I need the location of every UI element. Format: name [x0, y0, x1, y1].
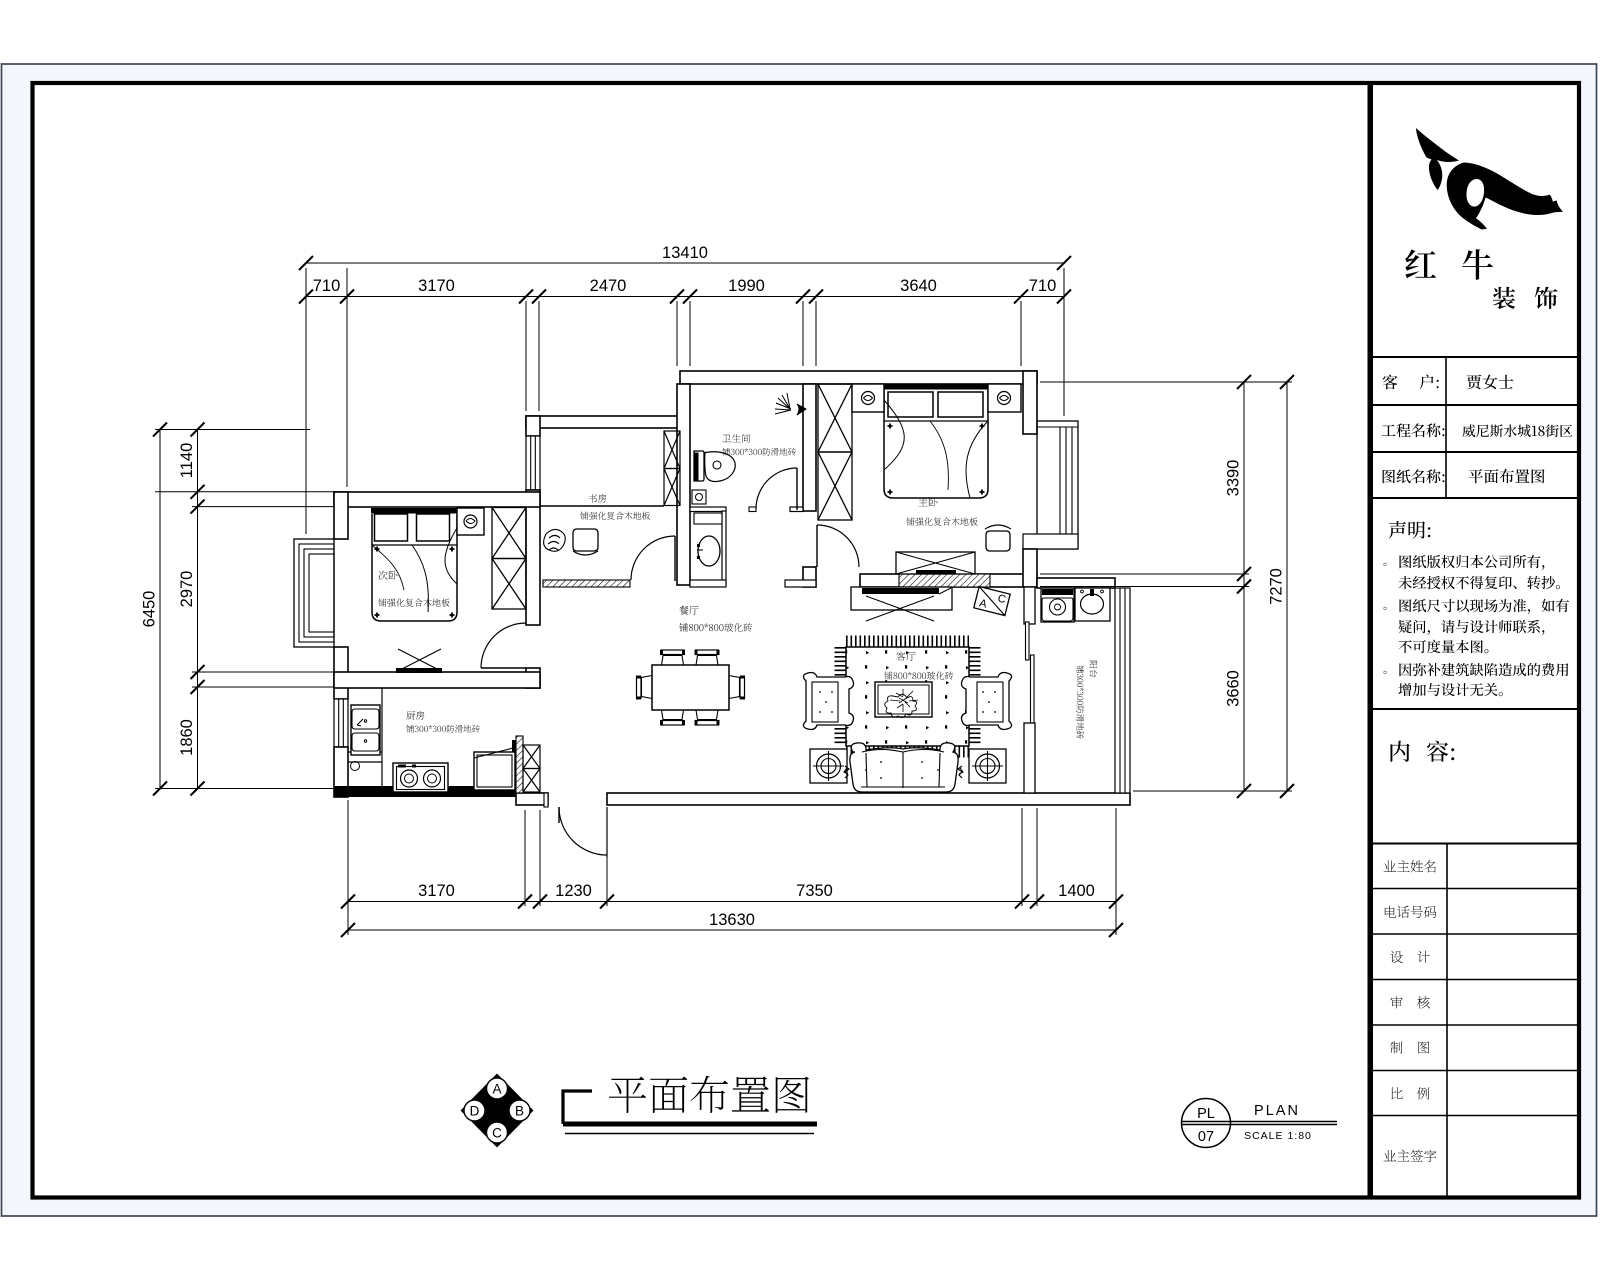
svg-text:2470: 2470: [590, 277, 627, 295]
svg-text:1990: 1990: [728, 277, 765, 295]
svg-text:1400: 1400: [1058, 882, 1095, 900]
svg-text:13630: 13630: [709, 911, 755, 929]
svg-text:PL: PL: [1197, 1106, 1215, 1122]
svg-text:3390: 3390: [1225, 460, 1243, 497]
svg-text:710: 710: [313, 277, 341, 295]
svg-text:6450: 6450: [141, 591, 159, 628]
svg-text:7350: 7350: [796, 882, 833, 900]
svg-text:7270: 7270: [1268, 568, 1286, 605]
svg-text:A: A: [492, 1082, 501, 1097]
svg-text:1230: 1230: [555, 882, 592, 900]
svg-text:PLAN: PLAN: [1254, 1103, 1300, 1119]
svg-text:1140: 1140: [178, 443, 196, 478]
svg-text:13410: 13410: [662, 244, 708, 262]
svg-text:3170: 3170: [418, 277, 455, 295]
svg-text:C: C: [492, 1126, 502, 1141]
svg-text:07: 07: [1198, 1129, 1214, 1145]
svg-text:D: D: [470, 1104, 480, 1119]
svg-text:3660: 3660: [1225, 670, 1243, 707]
svg-text:3170: 3170: [418, 882, 455, 900]
svg-text:3640: 3640: [900, 277, 937, 295]
svg-text:SCALE 1:80: SCALE 1:80: [1244, 1130, 1312, 1142]
svg-text:710: 710: [1029, 277, 1057, 295]
svg-text:2970: 2970: [178, 571, 196, 608]
svg-text:B: B: [515, 1104, 524, 1119]
svg-text:1860: 1860: [178, 719, 196, 756]
